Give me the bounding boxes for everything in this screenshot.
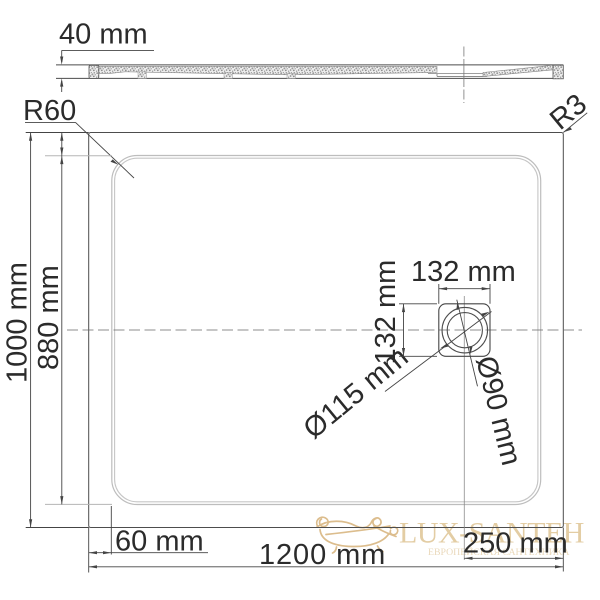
svg-text:40 mm: 40 mm xyxy=(59,19,148,51)
svg-text:1000 mm: 1000 mm xyxy=(2,262,34,383)
svg-text:880 mm: 880 mm xyxy=(33,265,65,370)
svg-text:60 mm: 60 mm xyxy=(115,526,204,558)
svg-text:250 mm: 250 mm xyxy=(463,528,568,560)
svg-text:132 mm: 132 mm xyxy=(370,260,402,365)
svg-text:132 mm: 132 mm xyxy=(411,256,516,288)
svg-text:Ø90 mm: Ø90 mm xyxy=(469,353,527,469)
svg-text:1200 mm: 1200 mm xyxy=(259,539,386,571)
